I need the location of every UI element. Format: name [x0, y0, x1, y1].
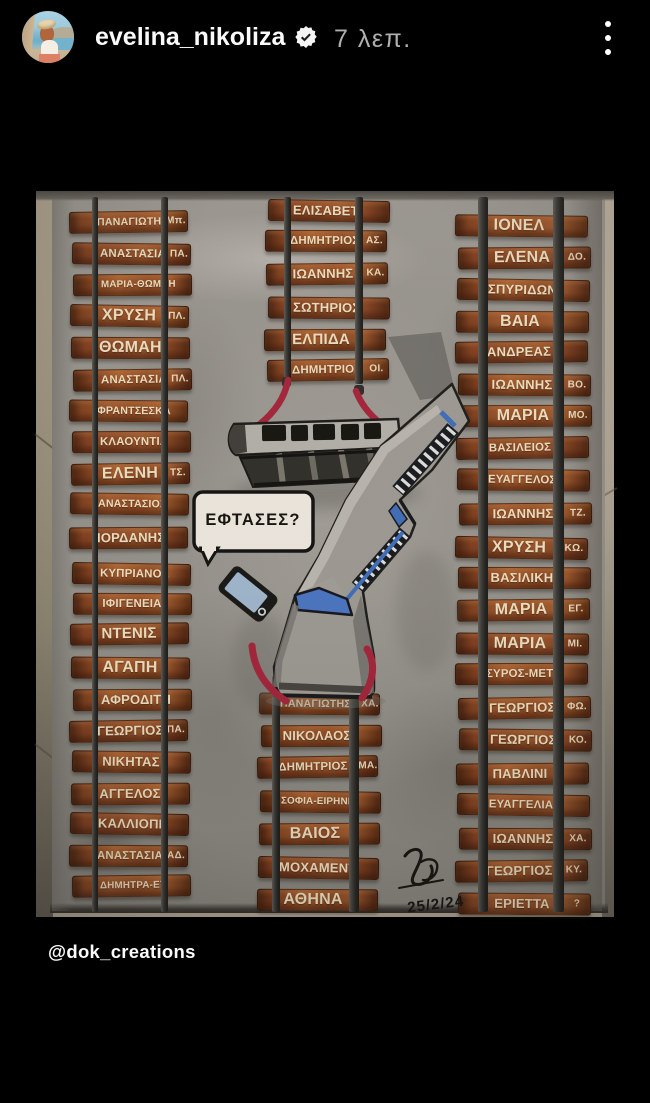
svg-text:25/2/24: 25/2/24 [406, 893, 465, 917]
svg-text:ΕΦΤΑΣΕΣ?: ΕΦΤΑΣΕΣ? [205, 511, 300, 529]
